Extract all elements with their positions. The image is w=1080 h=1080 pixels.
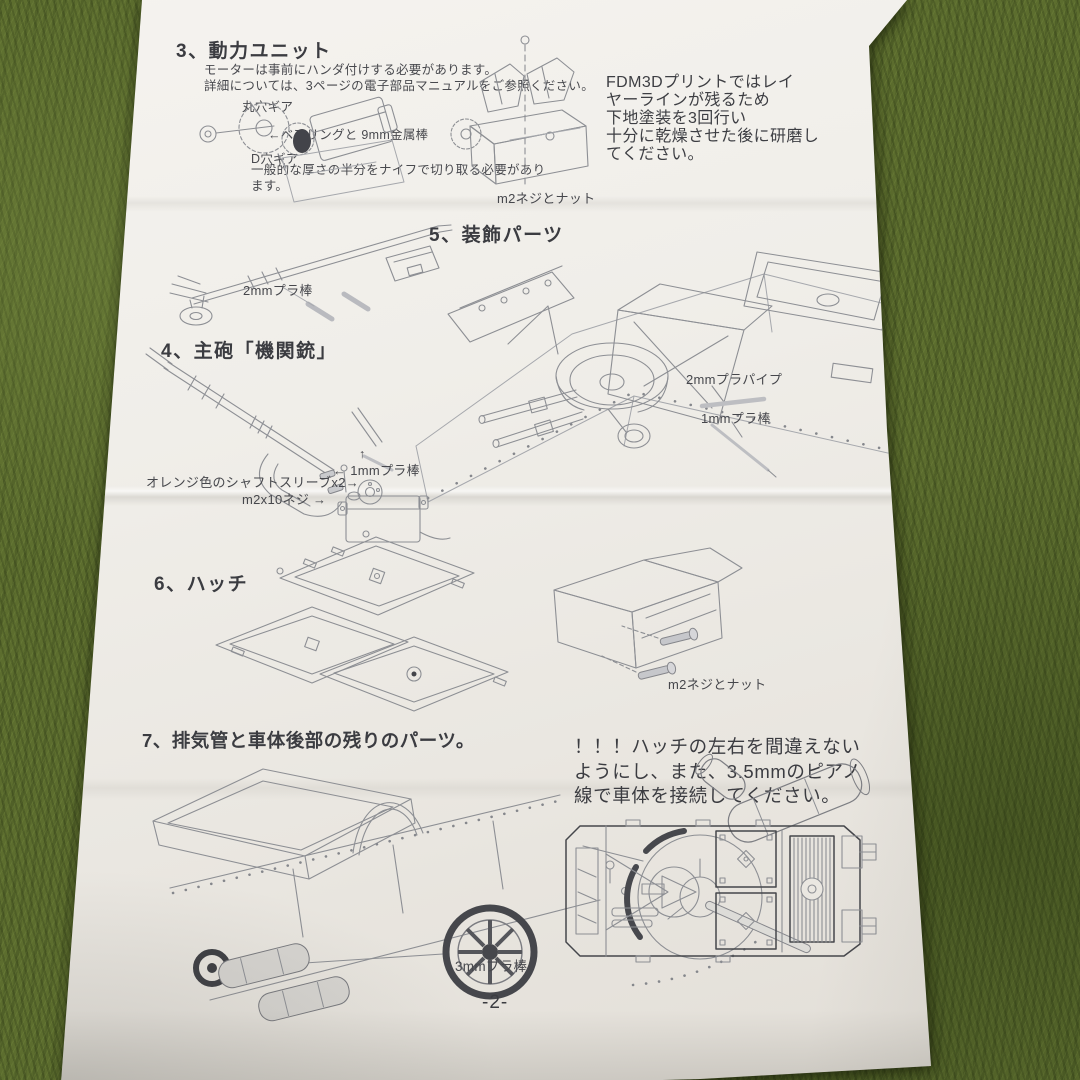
label-2mm-pipe: 2mmプラパイプ bbox=[686, 369, 782, 388]
label-1mm-rod-right: 1mmプラ棒 bbox=[701, 408, 771, 427]
figure-gun-servo-assembly bbox=[138, 346, 463, 554]
figure-vehicle-top-view bbox=[546, 804, 888, 974]
label-m2x10-screw: m2x10ネジ → bbox=[242, 489, 326, 508]
label-m2-screw-nut-2: m2ネジとナット bbox=[668, 674, 766, 693]
finish-note: FDM3Dプリントではレイ ヤーラインが残るため 下地塗装を3回行い 十分に乾燥… bbox=[606, 74, 819, 164]
label-arrow-up: ↑ bbox=[359, 447, 366, 461]
figure-hull-turret bbox=[412, 236, 914, 544]
figure-hatch-plates bbox=[216, 531, 518, 729]
instruction-sheet: 3、動力ユニット モーターは事前にハンダ付けする必要があります。 詳細については… bbox=[0, 0, 1080, 1080]
figure-power-unit-gears bbox=[186, 84, 438, 212]
paper-sheet-shadow: 3、動力ユニット モーターは事前にハンダ付けする必要があります。 詳細については… bbox=[0, 0, 1080, 1080]
photo-of-instruction-sheet: { "colors": { "carpet_green": "#5c6d2e",… bbox=[0, 0, 1080, 1080]
label-2mm-rod: 2mmプラ棒 bbox=[243, 280, 313, 299]
page-number: -2- bbox=[482, 992, 508, 1014]
label-3mm-rod: 3mmプラ棒 bbox=[455, 955, 527, 975]
figure-gearbox-screw-assembly bbox=[450, 32, 600, 200]
